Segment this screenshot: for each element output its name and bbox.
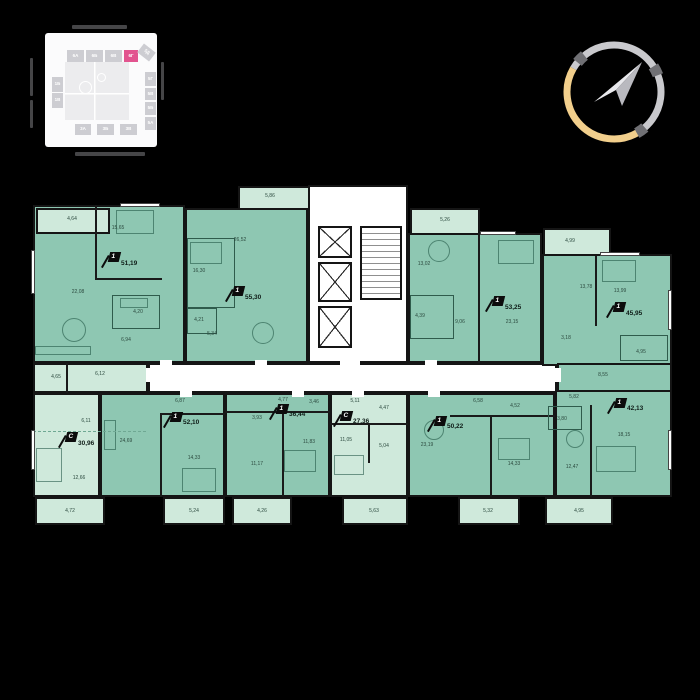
room-area-label: 4,21 bbox=[194, 317, 204, 323]
building-5b[interactable]: 5Б bbox=[145, 102, 156, 115]
partition-wall bbox=[95, 278, 162, 280]
street-label-left bbox=[30, 58, 33, 96]
room-area-label: 15,65 bbox=[112, 225, 125, 231]
apartment-1-area: 51,19 bbox=[121, 260, 137, 267]
apartment-10-area: 42,13 bbox=[627, 405, 643, 412]
partition-wall bbox=[590, 405, 592, 497]
room-area-label: 5,86 bbox=[265, 193, 275, 199]
compass-notch-se bbox=[637, 128, 645, 134]
apartment-1-type-flag: 1 bbox=[107, 252, 122, 268]
bed-icon bbox=[498, 240, 534, 264]
sofa-icon bbox=[104, 420, 116, 450]
flat-selector-screen: { "site_map": { "highlighted": "6Г", "hi… bbox=[0, 0, 700, 700]
room-area-label: 5,24 bbox=[189, 508, 199, 514]
room-area-label: 23,19 bbox=[421, 442, 434, 448]
room-area-label: 26,52 bbox=[234, 237, 247, 243]
dining-table-icon bbox=[62, 318, 86, 342]
bed-icon bbox=[596, 446, 636, 472]
partition-wall bbox=[368, 423, 370, 463]
room-area-label: 8,55 bbox=[598, 372, 608, 378]
room-area-label: 11,83 bbox=[303, 439, 315, 445]
partition-wall bbox=[95, 205, 97, 280]
room-area-label: 5,11 bbox=[350, 398, 359, 404]
street-label-top bbox=[72, 25, 127, 29]
apartment-7-area: 36,44 bbox=[289, 411, 305, 418]
room-area-label: 4,39 bbox=[415, 313, 425, 319]
building-6a[interactable]: 6А bbox=[67, 50, 84, 62]
room-area-label: 9,06 bbox=[455, 319, 465, 325]
building-1v[interactable]: 1В bbox=[52, 93, 63, 108]
window bbox=[31, 430, 35, 470]
courtyard-circle bbox=[79, 81, 92, 94]
room-area-label: 23,15 bbox=[506, 319, 519, 325]
building-1b[interactable]: 1Б bbox=[52, 77, 63, 92]
room-area-label: 18,15 bbox=[618, 432, 631, 438]
door-gap bbox=[428, 389, 440, 397]
room-area-label: 13,99 bbox=[614, 288, 627, 294]
room-area-label: 4,26 bbox=[257, 508, 267, 514]
apartment-5-area: 30,96 bbox=[78, 440, 94, 447]
room-area-label: 14,33 bbox=[508, 461, 521, 467]
door-gap bbox=[425, 360, 437, 368]
apartment-4-hall[interactable] bbox=[557, 363, 672, 392]
bed-icon bbox=[36, 448, 62, 482]
room-area-label: 13,78 bbox=[580, 284, 593, 290]
elevator-shaft-3 bbox=[318, 306, 352, 348]
window bbox=[120, 203, 160, 207]
kitchen-counter-icon bbox=[35, 346, 91, 355]
dining-table-icon bbox=[428, 240, 450, 262]
room-area-label: 4,77 bbox=[278, 397, 288, 403]
room-area-label: 5,04 bbox=[379, 443, 389, 449]
room-area-label: 12,47 bbox=[566, 464, 579, 470]
room-area-label: 11,05 bbox=[340, 437, 352, 443]
partition-wall bbox=[595, 256, 597, 326]
apartment-9-type-flag: 1 bbox=[433, 416, 448, 432]
room-area-label: 3,80 bbox=[557, 416, 567, 422]
courtyard-circle bbox=[97, 73, 106, 82]
room-area-label: 5,32 bbox=[483, 508, 493, 514]
room-area-label: 5,82 bbox=[569, 394, 579, 400]
room-area-label: 5,63 bbox=[369, 508, 379, 514]
room-area-label: 4,72 bbox=[65, 508, 75, 514]
apartment-7-type-flag: 1 bbox=[275, 404, 290, 420]
partition-wall bbox=[160, 413, 162, 497]
apartment-10-type-flag: 1 bbox=[613, 398, 628, 414]
door-gap bbox=[553, 368, 561, 382]
room-area-label: 6,58 bbox=[473, 398, 483, 404]
dining-table-icon bbox=[252, 322, 274, 344]
window bbox=[480, 231, 516, 235]
room-area-label: 3,46 bbox=[309, 399, 319, 405]
compass bbox=[558, 36, 670, 148]
building-5g[interactable]: 5Г bbox=[145, 72, 156, 86]
compass-needle-light bbox=[594, 62, 642, 102]
sofa-icon bbox=[334, 455, 364, 475]
apartment-6-type-flag: 1 bbox=[169, 412, 184, 428]
apartment-9-area: 50,22 bbox=[447, 423, 463, 430]
room-area-label: 5,34 bbox=[207, 331, 217, 337]
compass-notch-nw bbox=[578, 56, 585, 63]
room-area-label: 6,11 bbox=[81, 418, 90, 424]
room-area-label: 4,65 bbox=[51, 374, 61, 380]
door-gap bbox=[352, 389, 364, 397]
room-area-label: 6,87 bbox=[175, 398, 185, 404]
door-gap bbox=[255, 360, 267, 368]
room-area-label: 4,95 bbox=[636, 349, 646, 355]
bed-icon bbox=[284, 450, 316, 472]
room-area-label: 3,93 bbox=[252, 415, 262, 421]
apartment-4-type-flag: 1 bbox=[612, 302, 627, 318]
room-area-label: 11,17 bbox=[251, 461, 263, 467]
door-gap bbox=[340, 359, 360, 368]
partition-wall bbox=[490, 417, 492, 497]
room-area-label: 4,64 bbox=[67, 216, 77, 222]
building-3b[interactable]: 3Б bbox=[97, 124, 114, 135]
building-6v[interactable]: 6В bbox=[105, 50, 122, 62]
bathtub-icon bbox=[120, 298, 148, 308]
window bbox=[668, 430, 672, 470]
elevator-shaft-2 bbox=[318, 262, 352, 302]
room-area-label: 24,69 bbox=[120, 438, 133, 444]
elevator-shaft-1 bbox=[318, 226, 352, 258]
building-3v[interactable]: 3В bbox=[120, 124, 137, 135]
building-6b[interactable]: 6Б bbox=[86, 50, 103, 62]
studio-zone-divider bbox=[33, 431, 146, 432]
staircase bbox=[360, 226, 402, 300]
room-area-label: 14,33 bbox=[188, 455, 201, 461]
door-gap bbox=[160, 360, 172, 368]
room-area-label: 12,66 bbox=[73, 475, 86, 481]
window bbox=[668, 290, 672, 330]
window bbox=[31, 250, 35, 294]
room-area-label: 4,47 bbox=[379, 405, 389, 411]
apartment-2-area: 55,30 bbox=[245, 294, 261, 301]
apartment-3-type-flag: 1 bbox=[491, 296, 506, 312]
apartment-4-area: 45,95 bbox=[626, 310, 642, 317]
bed-icon bbox=[182, 468, 216, 492]
street-label-right bbox=[161, 62, 164, 100]
apartment-6-area: 52,10 bbox=[183, 419, 199, 426]
bed-icon bbox=[498, 438, 530, 460]
apartment-5-type-flag: С bbox=[64, 432, 79, 448]
room-area-label: 6,94 bbox=[121, 337, 131, 343]
window bbox=[600, 252, 640, 256]
partition-wall bbox=[66, 363, 68, 393]
bed-icon bbox=[602, 260, 636, 282]
apartment-3-area: 53,25 bbox=[505, 304, 521, 311]
room-area-label: 4,52 bbox=[510, 403, 520, 409]
street-label-left2 bbox=[30, 100, 33, 128]
room-area-label: 22,08 bbox=[72, 289, 85, 295]
room-area-label: 6,12 bbox=[95, 371, 105, 377]
compass-notch-ne bbox=[653, 66, 658, 75]
door-gap bbox=[180, 389, 192, 397]
room-area-label: 3,18 bbox=[561, 335, 571, 341]
partition-wall bbox=[478, 233, 480, 363]
street-label-bottom bbox=[75, 152, 145, 156]
dining-table-icon bbox=[566, 430, 584, 448]
apartment-2-type-flag: 1 bbox=[231, 286, 246, 302]
room-area-label: 16,30 bbox=[193, 268, 206, 274]
apartment-8-type-flag: С bbox=[339, 411, 354, 427]
room-area-label: 4,20 bbox=[133, 309, 143, 315]
room-area-label: 5,26 bbox=[440, 217, 450, 223]
room-area-label: 13,02 bbox=[418, 261, 431, 267]
building-5a[interactable]: 5А bbox=[145, 117, 156, 130]
room-area-label: 4,95 bbox=[574, 508, 584, 514]
door-gap bbox=[146, 368, 154, 382]
building-5v[interactable]: 5В bbox=[145, 88, 156, 100]
building-3a[interactable]: 3А bbox=[75, 124, 91, 135]
courtyard bbox=[65, 62, 129, 120]
apartment-8-area: 27,36 bbox=[353, 418, 369, 425]
door-gap bbox=[292, 389, 304, 397]
partition-wall bbox=[450, 415, 555, 417]
room-area-label: 4,99 bbox=[565, 238, 575, 244]
bathroom-outline bbox=[620, 335, 668, 361]
bed-icon bbox=[190, 242, 222, 264]
